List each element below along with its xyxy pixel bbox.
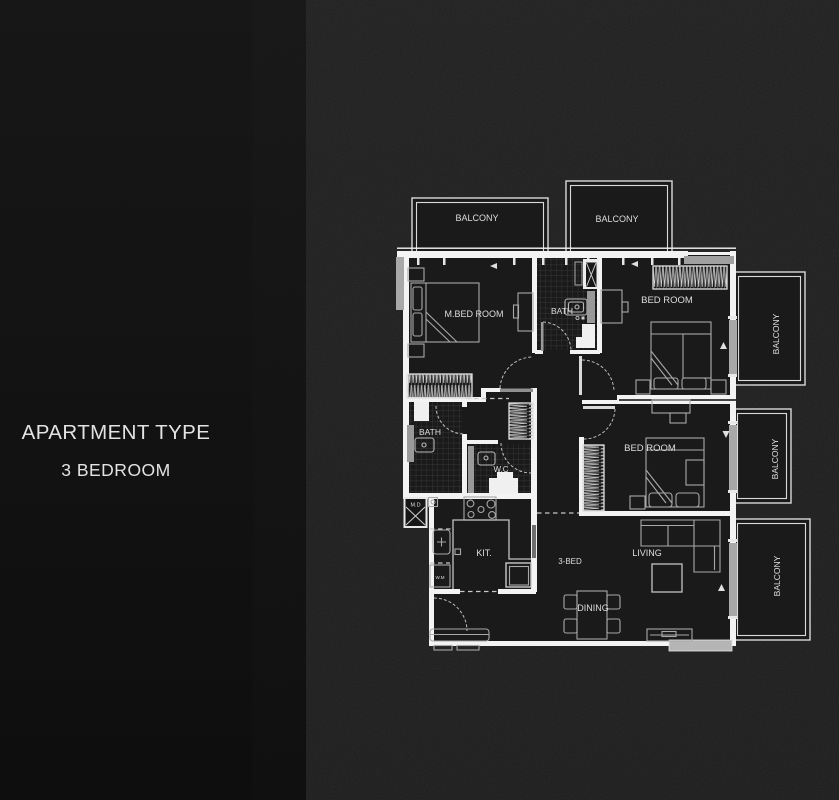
svg-text:BATH: BATH	[419, 427, 441, 437]
svg-text:M.BED ROOM: M.BED ROOM	[444, 309, 503, 319]
svg-text:BALCONY: BALCONY	[770, 438, 780, 479]
svg-text:BATH: BATH	[551, 306, 573, 316]
svg-text:W.M: W.M	[436, 575, 445, 580]
svg-text:M.D: M.D	[410, 503, 420, 509]
svg-text:W.C: W.C	[493, 465, 508, 474]
svg-text:BALCONY: BALCONY	[771, 313, 781, 354]
svg-text:BALCONY: BALCONY	[772, 555, 782, 596]
svg-text:BED ROOM: BED ROOM	[641, 295, 693, 306]
svg-text:LIVING: LIVING	[632, 548, 662, 558]
svg-text:BALCONY: BALCONY	[595, 214, 638, 224]
svg-text:DINING: DINING	[577, 603, 609, 613]
svg-text:3-BED: 3-BED	[558, 557, 582, 566]
svg-text:BALCONY: BALCONY	[455, 213, 498, 223]
svg-text:BED ROOM: BED ROOM	[624, 443, 676, 454]
svg-text:KIT.: KIT.	[476, 548, 492, 558]
